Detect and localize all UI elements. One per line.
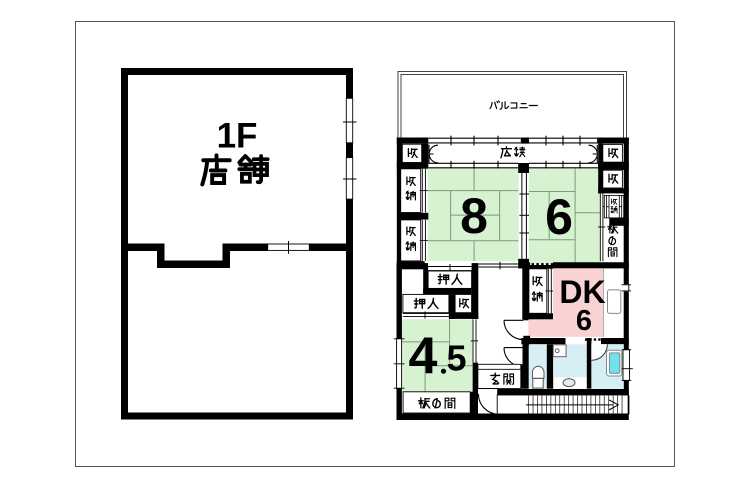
svg-text:6: 6 bbox=[576, 305, 592, 337]
svg-text:1F: 1F bbox=[217, 117, 258, 156]
svg-text:8: 8 bbox=[460, 188, 488, 244]
svg-text:5: 5 bbox=[446, 337, 466, 378]
svg-text:4: 4 bbox=[409, 328, 438, 386]
svg-text:6: 6 bbox=[545, 189, 573, 245]
